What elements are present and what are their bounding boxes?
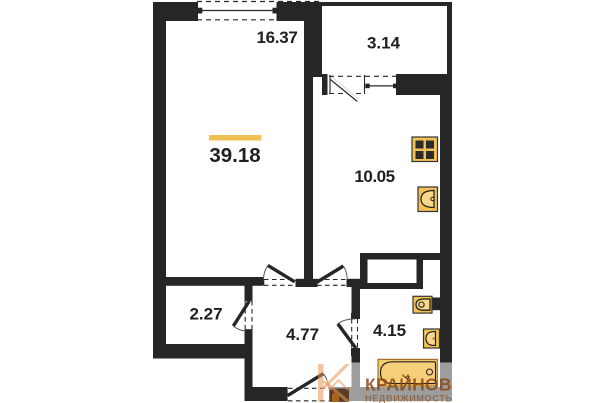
svg-text:3.14: 3.14	[367, 34, 401, 53]
svg-text:39.18: 39.18	[209, 144, 260, 167]
svg-text:КРАЙНОВ: КРАЙНОВ	[365, 374, 452, 395]
svg-text:2.27: 2.27	[189, 305, 222, 324]
svg-text:4.15: 4.15	[373, 321, 406, 340]
svg-text:10.05: 10.05	[354, 167, 394, 186]
svg-text:НЕДВИЖИМОСТЬ: НЕДВИЖИМОСТЬ	[365, 394, 453, 403]
svg-text:16.37: 16.37	[256, 28, 297, 47]
svg-text:4.77: 4.77	[286, 325, 319, 344]
